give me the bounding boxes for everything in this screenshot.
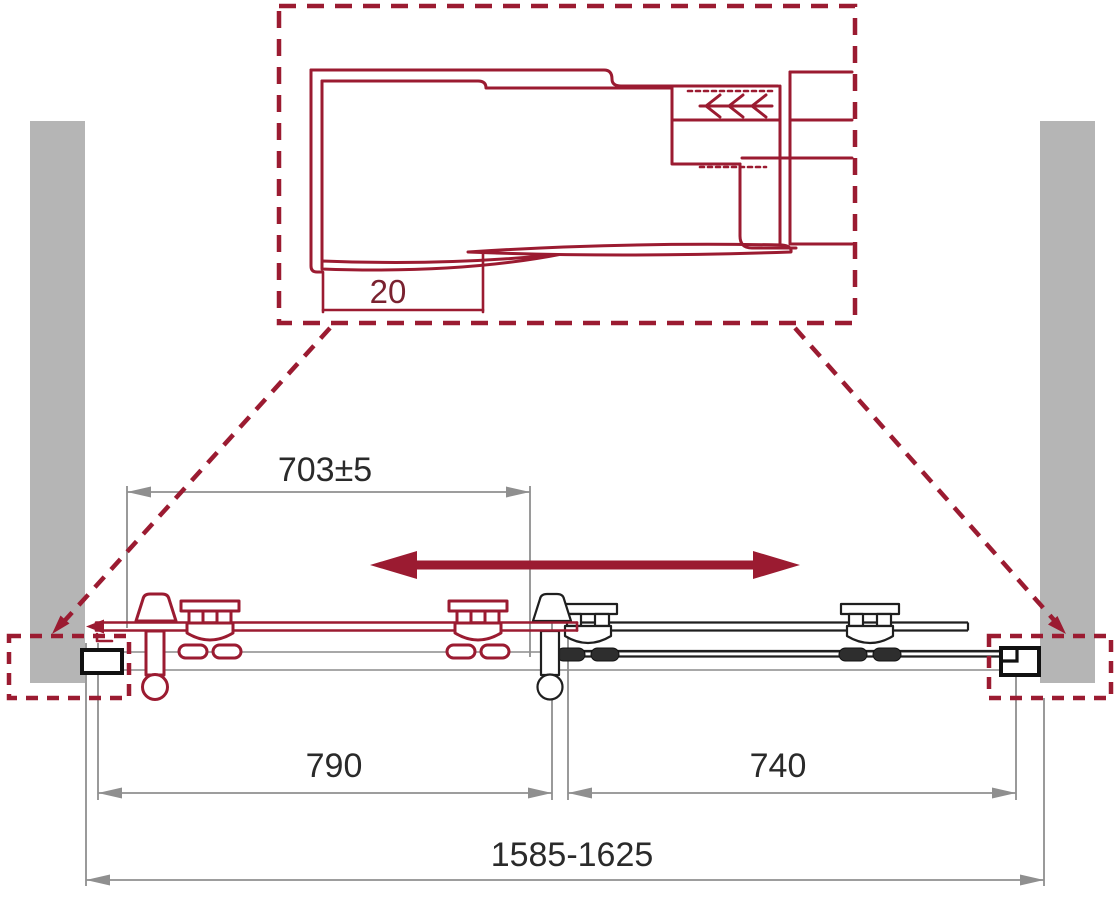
serrated-anchor xyxy=(672,88,780,167)
dimension-panel-width-label: 740 xyxy=(750,747,807,785)
left-wall-bracket xyxy=(82,650,122,673)
door-edge-tip xyxy=(86,620,104,634)
sliding-door-knob xyxy=(136,594,176,700)
dimension-overall-width-label: 1585-1625 xyxy=(491,836,654,874)
dimension-door-width: 790 xyxy=(98,747,552,799)
detail-gap-label: 20 xyxy=(370,273,407,310)
dimension-overall-width: 1585-1625 xyxy=(86,836,1044,886)
drawing-canvas: 703±5 790 740 1585-1625 xyxy=(0,0,1120,900)
right-leader-line xyxy=(795,328,1054,620)
slide-direction-arrow xyxy=(370,551,800,579)
dimension-opening-label: 703±5 xyxy=(278,451,372,489)
detail-view-frame xyxy=(279,6,855,323)
fixed-panel-knob xyxy=(533,594,571,700)
left-wall xyxy=(30,121,85,683)
dimension-opening: 703±5 xyxy=(127,451,530,498)
sliding-door xyxy=(86,594,577,700)
dimension-door-width-label: 790 xyxy=(306,747,363,785)
sliding-door-roller xyxy=(179,601,241,658)
dimension-panel-width: 740 xyxy=(568,747,1016,799)
shower-door-technical-drawing: 703±5 790 740 1585-1625 xyxy=(0,0,1120,900)
detail-profile-section: 20 xyxy=(311,70,852,312)
right-wall xyxy=(1040,121,1095,683)
sliding-door-roller xyxy=(447,601,509,658)
right-wall-bracket xyxy=(1001,648,1039,675)
dimension-extension-lines xyxy=(86,486,1044,886)
